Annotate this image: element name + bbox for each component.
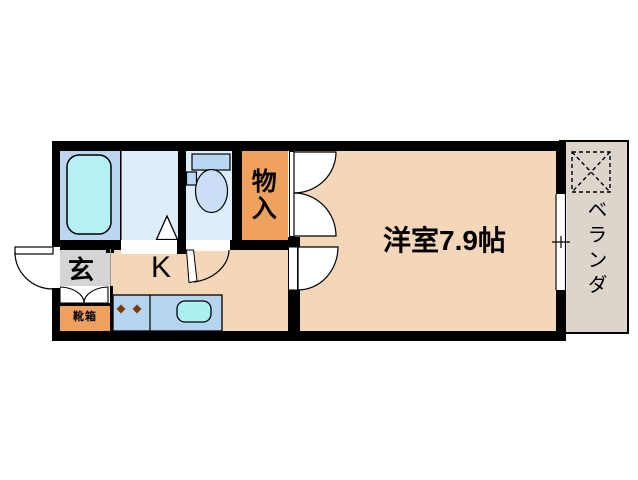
wall-left-upper [52, 141, 60, 247]
wall-bottom [52, 331, 566, 341]
veranda-label: ベランダ [584, 199, 605, 299]
wall-kitchen-western-upper [288, 237, 300, 247]
kitchen-label: K [151, 252, 171, 284]
bathtub [67, 155, 111, 234]
wall-kitchen-western-lower [288, 290, 300, 331]
wall-washroom-toilet [178, 151, 186, 240]
toilet-tank [192, 154, 230, 170]
toilet-bowl [196, 170, 228, 213]
divider-bath-washroom [120, 151, 122, 240]
bathtub-icon [67, 155, 111, 234]
toilet-flush-handle [187, 172, 197, 185]
entrance-door-leaf [15, 247, 53, 254]
wall-left-lower [52, 288, 60, 341]
shoe-cabinet-top-edge [60, 303, 110, 306]
wall-top [52, 141, 566, 151]
wall-toilet-storage [232, 151, 242, 240]
wall-stub-washroom-toilet [177, 240, 186, 254]
western-room-label: 洋室7.9帖 [383, 226, 506, 255]
storage-label: 物入 [249, 168, 275, 222]
kitchen-sink-icon [177, 301, 211, 322]
toilet-doorway [186, 240, 230, 251]
shoe-cabinet-label: 靴箱 [60, 312, 110, 324]
wall-right-upper [556, 141, 566, 194]
entrance-label: 玄 [68, 257, 94, 284]
entrance-door-swing-arc [15, 252, 52, 289]
entrance-door [15, 247, 53, 289]
edge-entrance-kitchen [110, 249, 111, 286]
western-room-door-leaf [289, 247, 298, 290]
floor-plan-drawing [0, 0, 638, 480]
wall-right-lower [556, 290, 566, 341]
floor-plan: 洋室7.9帖 K 玄 靴箱 物入 ベランダ [0, 0, 638, 480]
kitchen-counter [113, 295, 222, 331]
divider-entrance-kitchen [110, 286, 113, 331]
shoe-cabinet [60, 286, 110, 331]
storage-door-opening [290, 152, 295, 237]
